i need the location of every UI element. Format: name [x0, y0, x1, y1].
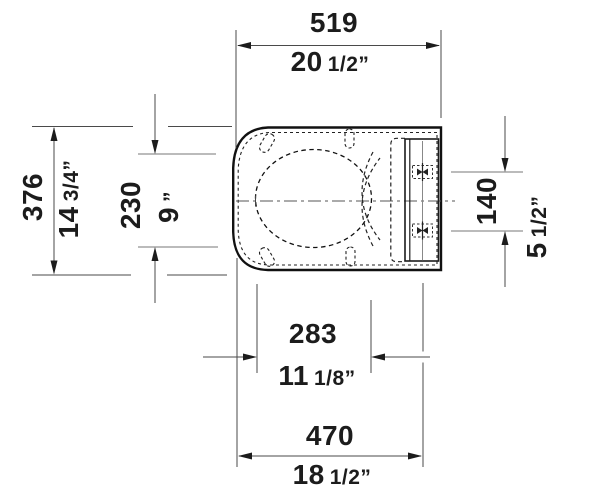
dim-length-overall-inch-frac: 1/2”	[328, 53, 370, 76]
dim-width-overall-inch: 143/4”	[55, 158, 83, 241]
dim-length-overall-inch-int: 20	[291, 46, 323, 77]
dim-width-overall-inch-int: 14	[53, 206, 84, 238]
dim-front-to-holes-inch-frac: 1/2”	[330, 466, 372, 489]
dim-hole-spacing-inch: 51/2”	[523, 194, 551, 261]
dim-length-overall-mm: 519	[308, 9, 360, 37]
dim-front-to-holes-inch: 181/2”	[291, 461, 374, 489]
dim-front-to-holes-mm: 470	[304, 422, 356, 450]
dim-opening-width-inch-frac: ”	[160, 191, 183, 202]
dim-width-overall-mm: 376	[19, 171, 47, 223]
dim-front-to-holes-inch-int: 18	[293, 459, 325, 490]
dim-opening-length-mm: 283	[287, 320, 339, 348]
dim-hole-spacing-inch-frac: 1/2”	[528, 196, 551, 238]
dim-opening-length-inch-frac: 1/8”	[314, 367, 356, 390]
dim-hole-spacing-inch-int: 5	[521, 242, 552, 258]
dim-opening-width-inch: 9”	[155, 189, 183, 225]
dim-length-overall-inch: 201/2”	[289, 48, 372, 76]
dim-hole-spacing-mm: 140	[473, 175, 501, 227]
drawing-canvas: 519 201/2” 376 143/4” 230 9” 140 51/2” 2…	[0, 0, 600, 500]
dim-opening-length-inch-int: 11	[278, 360, 309, 391]
dim-width-overall-inch-frac: 3/4”	[60, 160, 83, 202]
dim-opening-width-inch-int: 9	[153, 207, 184, 223]
dim-opening-length-inch: 111/8”	[276, 362, 357, 390]
dim-opening-width-mm: 230	[117, 179, 145, 231]
